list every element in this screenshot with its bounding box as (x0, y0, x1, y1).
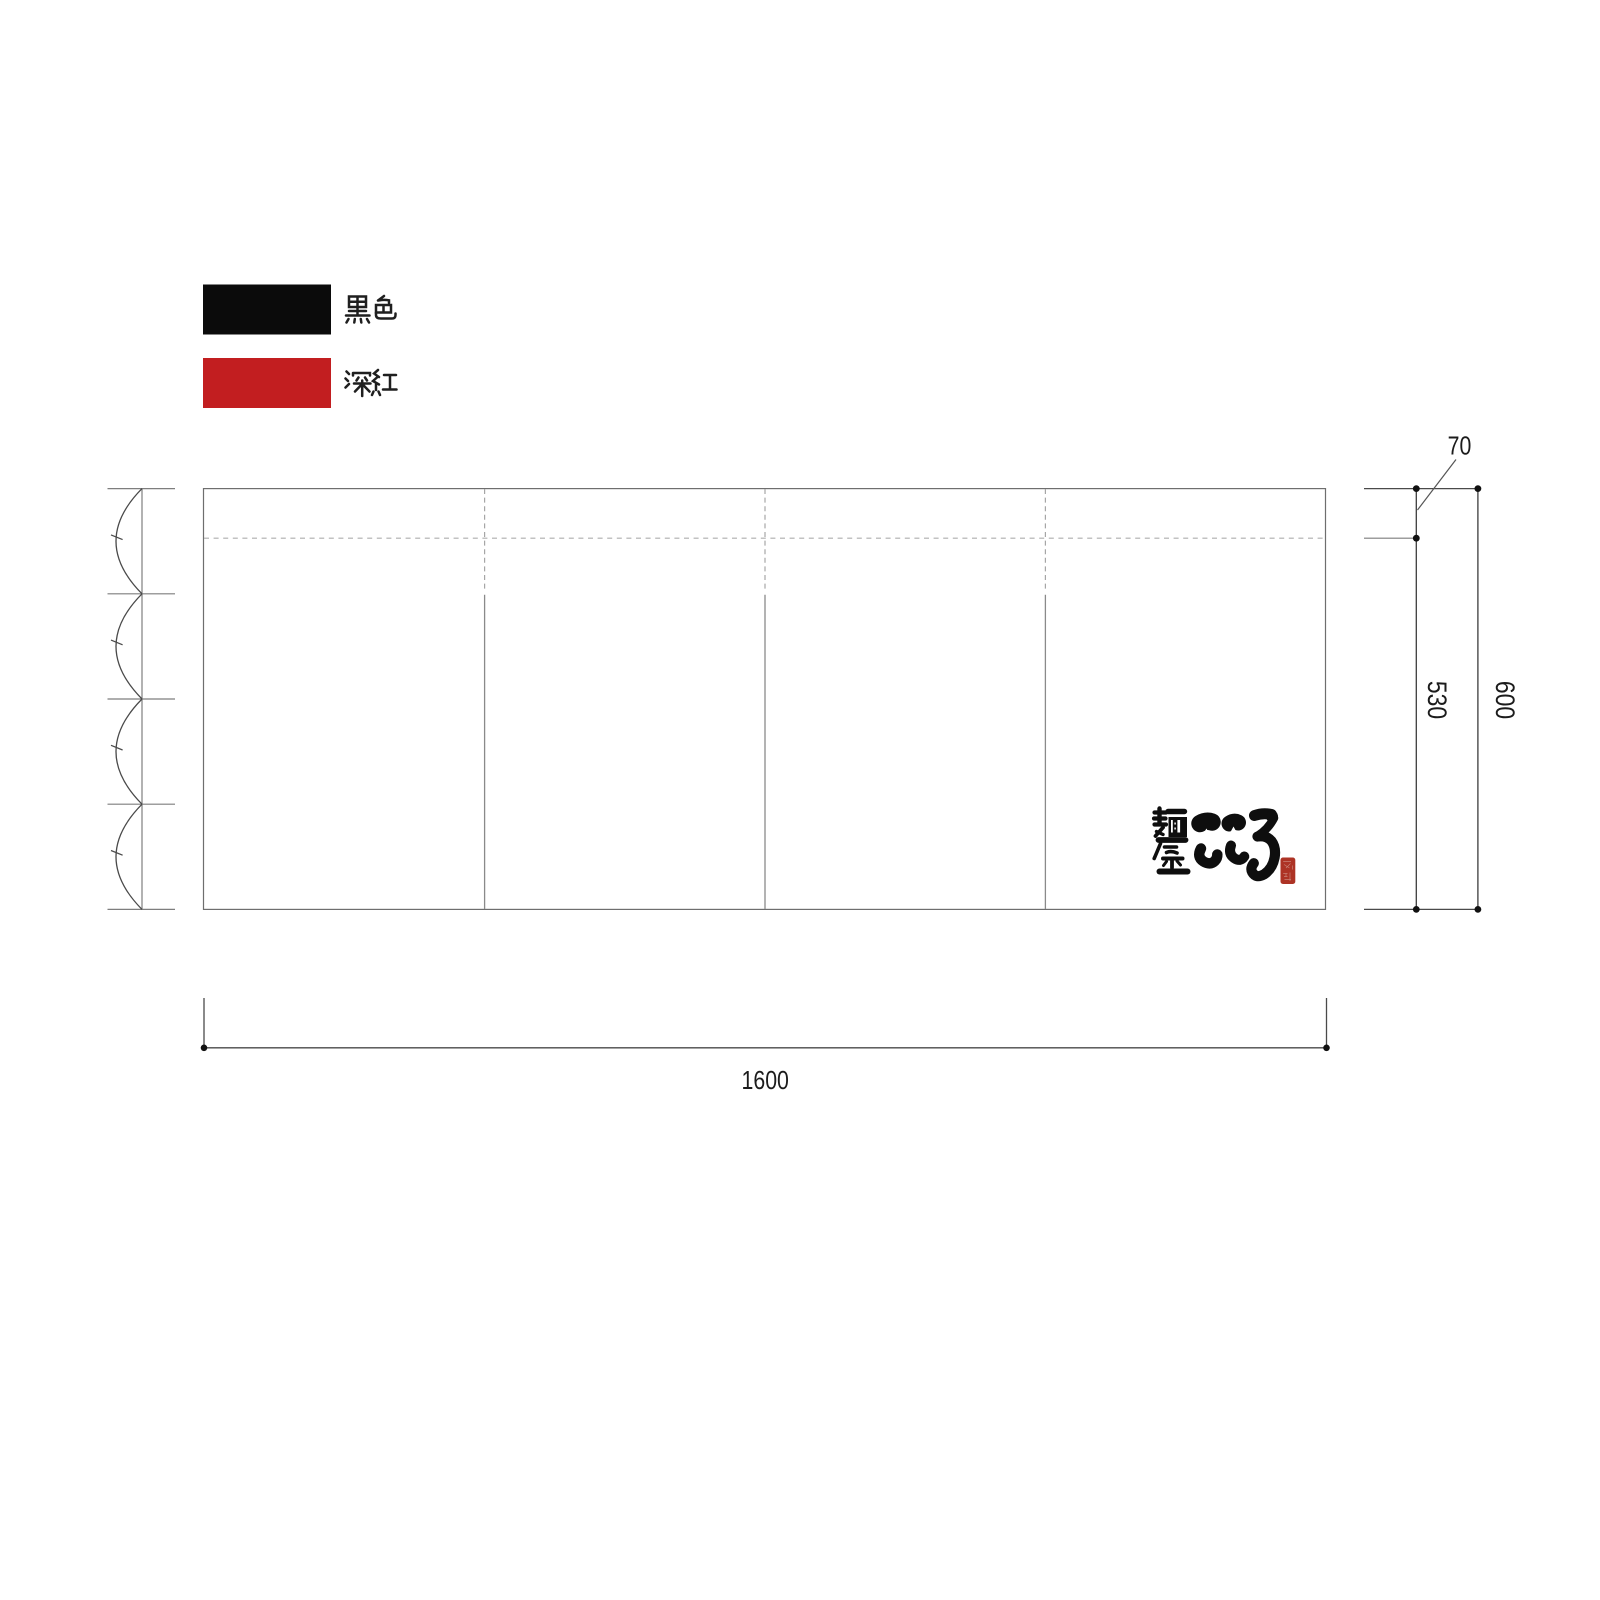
svg-text:70: 70 (1448, 431, 1472, 461)
svg-text:530: 530 (1421, 681, 1451, 719)
svg-text:1600: 1600 (741, 1066, 788, 1096)
svg-text:600: 600 (1489, 681, 1519, 719)
